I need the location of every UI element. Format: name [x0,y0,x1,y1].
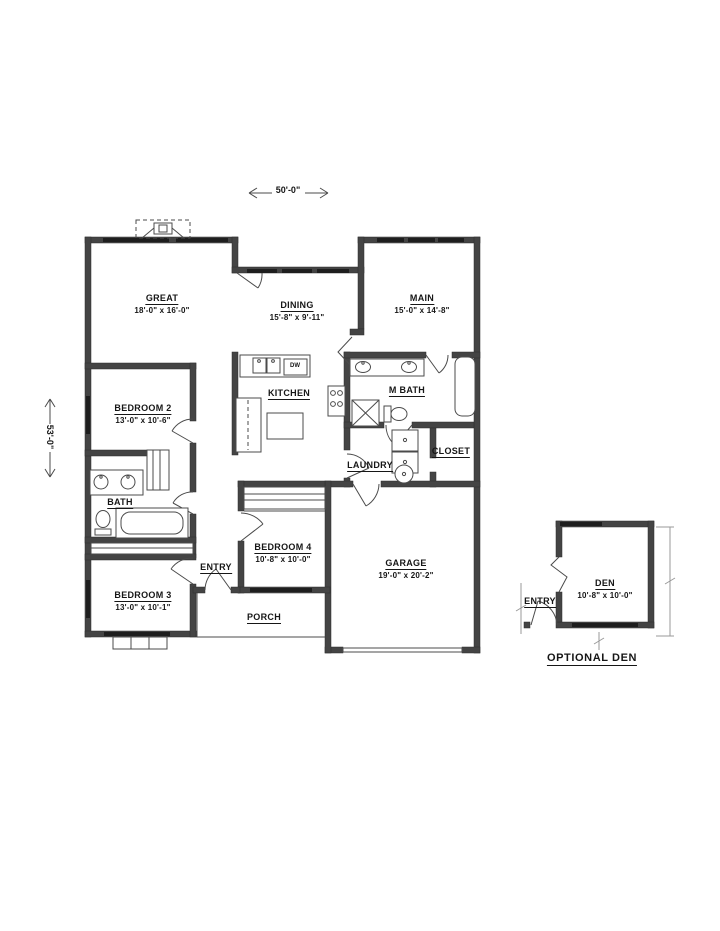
window-great-2 [176,238,228,242]
den-wall-left-upper [556,521,562,557]
room-label-den-entry: ENTRY [524,591,556,609]
room-label-laundry: LAUNDRY [347,455,393,473]
mbath-toilet [384,406,407,422]
room-label-main: MAIN 15'-0" x 14'-8" [394,288,449,316]
window-bedroom3-bottom [104,632,170,636]
bedroom2-closet [147,450,169,490]
window-dining-1 [247,269,277,273]
wall-garage-top-b [381,481,480,487]
stoop [113,637,167,649]
floor-plan-page: 50'-0" 53'-0" GREAT 18'-0" x 16'-0" DINI… [0,0,720,931]
window-bedroom4-porch [250,588,312,592]
bedroom4-closet [244,487,325,511]
wall-bedroom2-top [85,363,196,369]
water-heater [395,465,413,483]
room-label-dining: DINING 15'-8" x 9'-11" [270,295,325,323]
room-label-great: GREAT 18'-0" x 16'-0" [134,288,189,316]
wall-garage-left [325,481,331,653]
door-bedroom3 [171,558,193,584]
range [328,386,345,416]
wall-left-outer [85,237,91,637]
mbath-tub [455,357,475,416]
room-label-den: DEN 10'-8" x 10'-0" [577,573,632,601]
wall-hall-a [190,363,196,421]
wall-entry-front-a [193,587,205,593]
window-main-2 [408,238,435,242]
kitchen-island [267,413,303,439]
room-label-closet: CLOSET [432,441,470,459]
room-label-bedroom4: BEDROOM 4 10'-8" x 10'-0" [254,537,311,565]
wall-bedroom4-left [238,541,244,593]
wall-main-left [358,237,364,329]
window-great-1 [103,238,169,242]
wall-bedroom4-closet-left [238,481,244,511]
fireplace [136,220,190,238]
room-label-porch: PORCH [247,607,281,625]
pantry [236,398,261,452]
den-window-bottom [572,623,638,627]
dishwasher-label: DW [290,363,300,369]
room-label-bedroom3: BEDROOM 3 13'-0" x 10'-1" [114,585,171,613]
wall-entry-front-b [231,587,240,593]
door-bedroom2 [172,419,193,443]
den-dim-extension-right [656,527,675,636]
wall-mbath-bottom-b [412,422,474,428]
den-window-top [560,522,602,526]
wall-hall-b [190,443,196,492]
den-wall-break [551,557,567,592]
wall-bedroom2-bottom [85,450,147,456]
room-label-mbath: M BATH [389,380,425,398]
door-dining [237,273,262,288]
door-garage [353,484,379,506]
room-label-bath: BATH [107,492,133,510]
room-label-garage: GARAGE 19'-0" x 20'-2" [378,553,433,581]
window-bedroom2 [86,396,90,434]
room-label-kitchen: KITCHEN [268,383,310,401]
door-mbath-from-main [426,355,448,373]
optional-den-title: OPTIONAL DEN [547,648,637,666]
den-wall-left-lower [556,592,562,622]
wall-bedroom4-closet-top [238,481,325,487]
window-dining-3 [317,269,349,273]
den-wall-right [648,521,654,628]
window-bedroom3-left [86,580,90,618]
wall-bedroom3-top [85,554,196,560]
room-label-entry: ENTRY [200,557,232,575]
width-dimension-label: 50'-0" [276,185,300,195]
bath-toilet [95,511,111,536]
shower [352,400,379,426]
mbath-vanity [350,359,424,376]
wall-garage-bottom-right [462,647,480,653]
garage-door [343,648,462,652]
wall-mbath-top-a [344,352,426,358]
bedroom3-closet [91,543,193,554]
wall-right-outer [474,237,480,653]
room-label-bedroom2: BEDROOM 2 13'-0" x 10'-6" [114,398,171,426]
wall-main-left-jog [350,329,364,335]
height-dimension-label: 53'-0" [45,425,55,449]
window-main-3 [438,238,464,242]
den-wall-bottom-a [524,622,530,628]
window-dining-2 [282,269,312,273]
window-main-1 [377,238,404,242]
bath-tub [116,508,188,538]
